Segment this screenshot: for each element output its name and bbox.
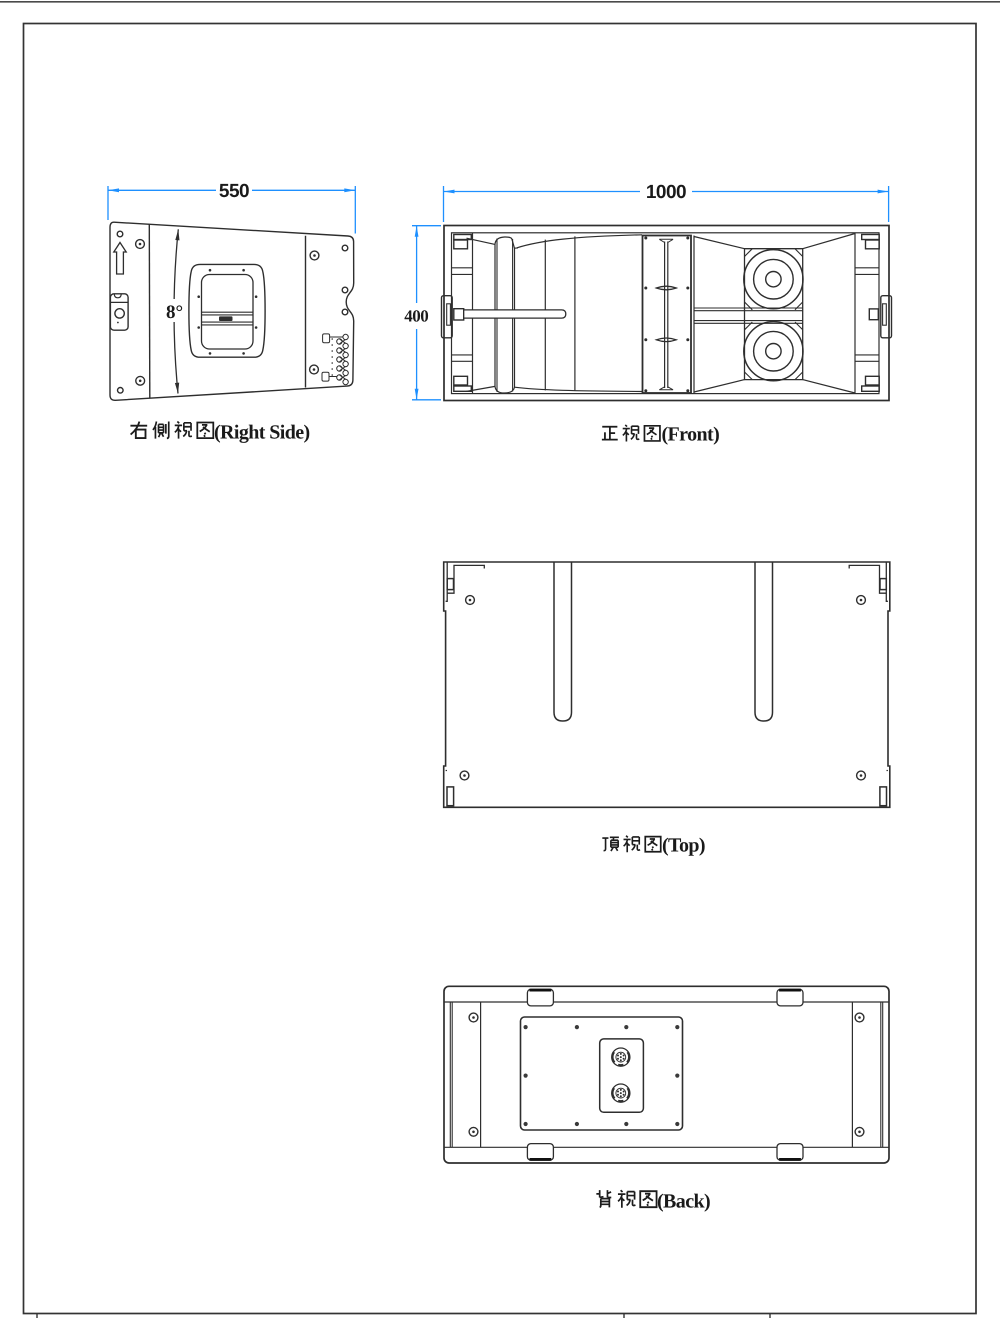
svg-text:(Front): (Front) <box>662 424 720 446</box>
svg-text:1000: 1000 <box>646 182 686 203</box>
svg-text:8°: 8° <box>166 302 183 323</box>
svg-text:400: 400 <box>404 307 428 326</box>
svg-text:(Top): (Top) <box>662 835 705 857</box>
svg-text:550: 550 <box>219 181 249 202</box>
svg-text:(Back): (Back) <box>657 1191 710 1213</box>
svg-text:(Right Side): (Right Side) <box>214 422 310 444</box>
